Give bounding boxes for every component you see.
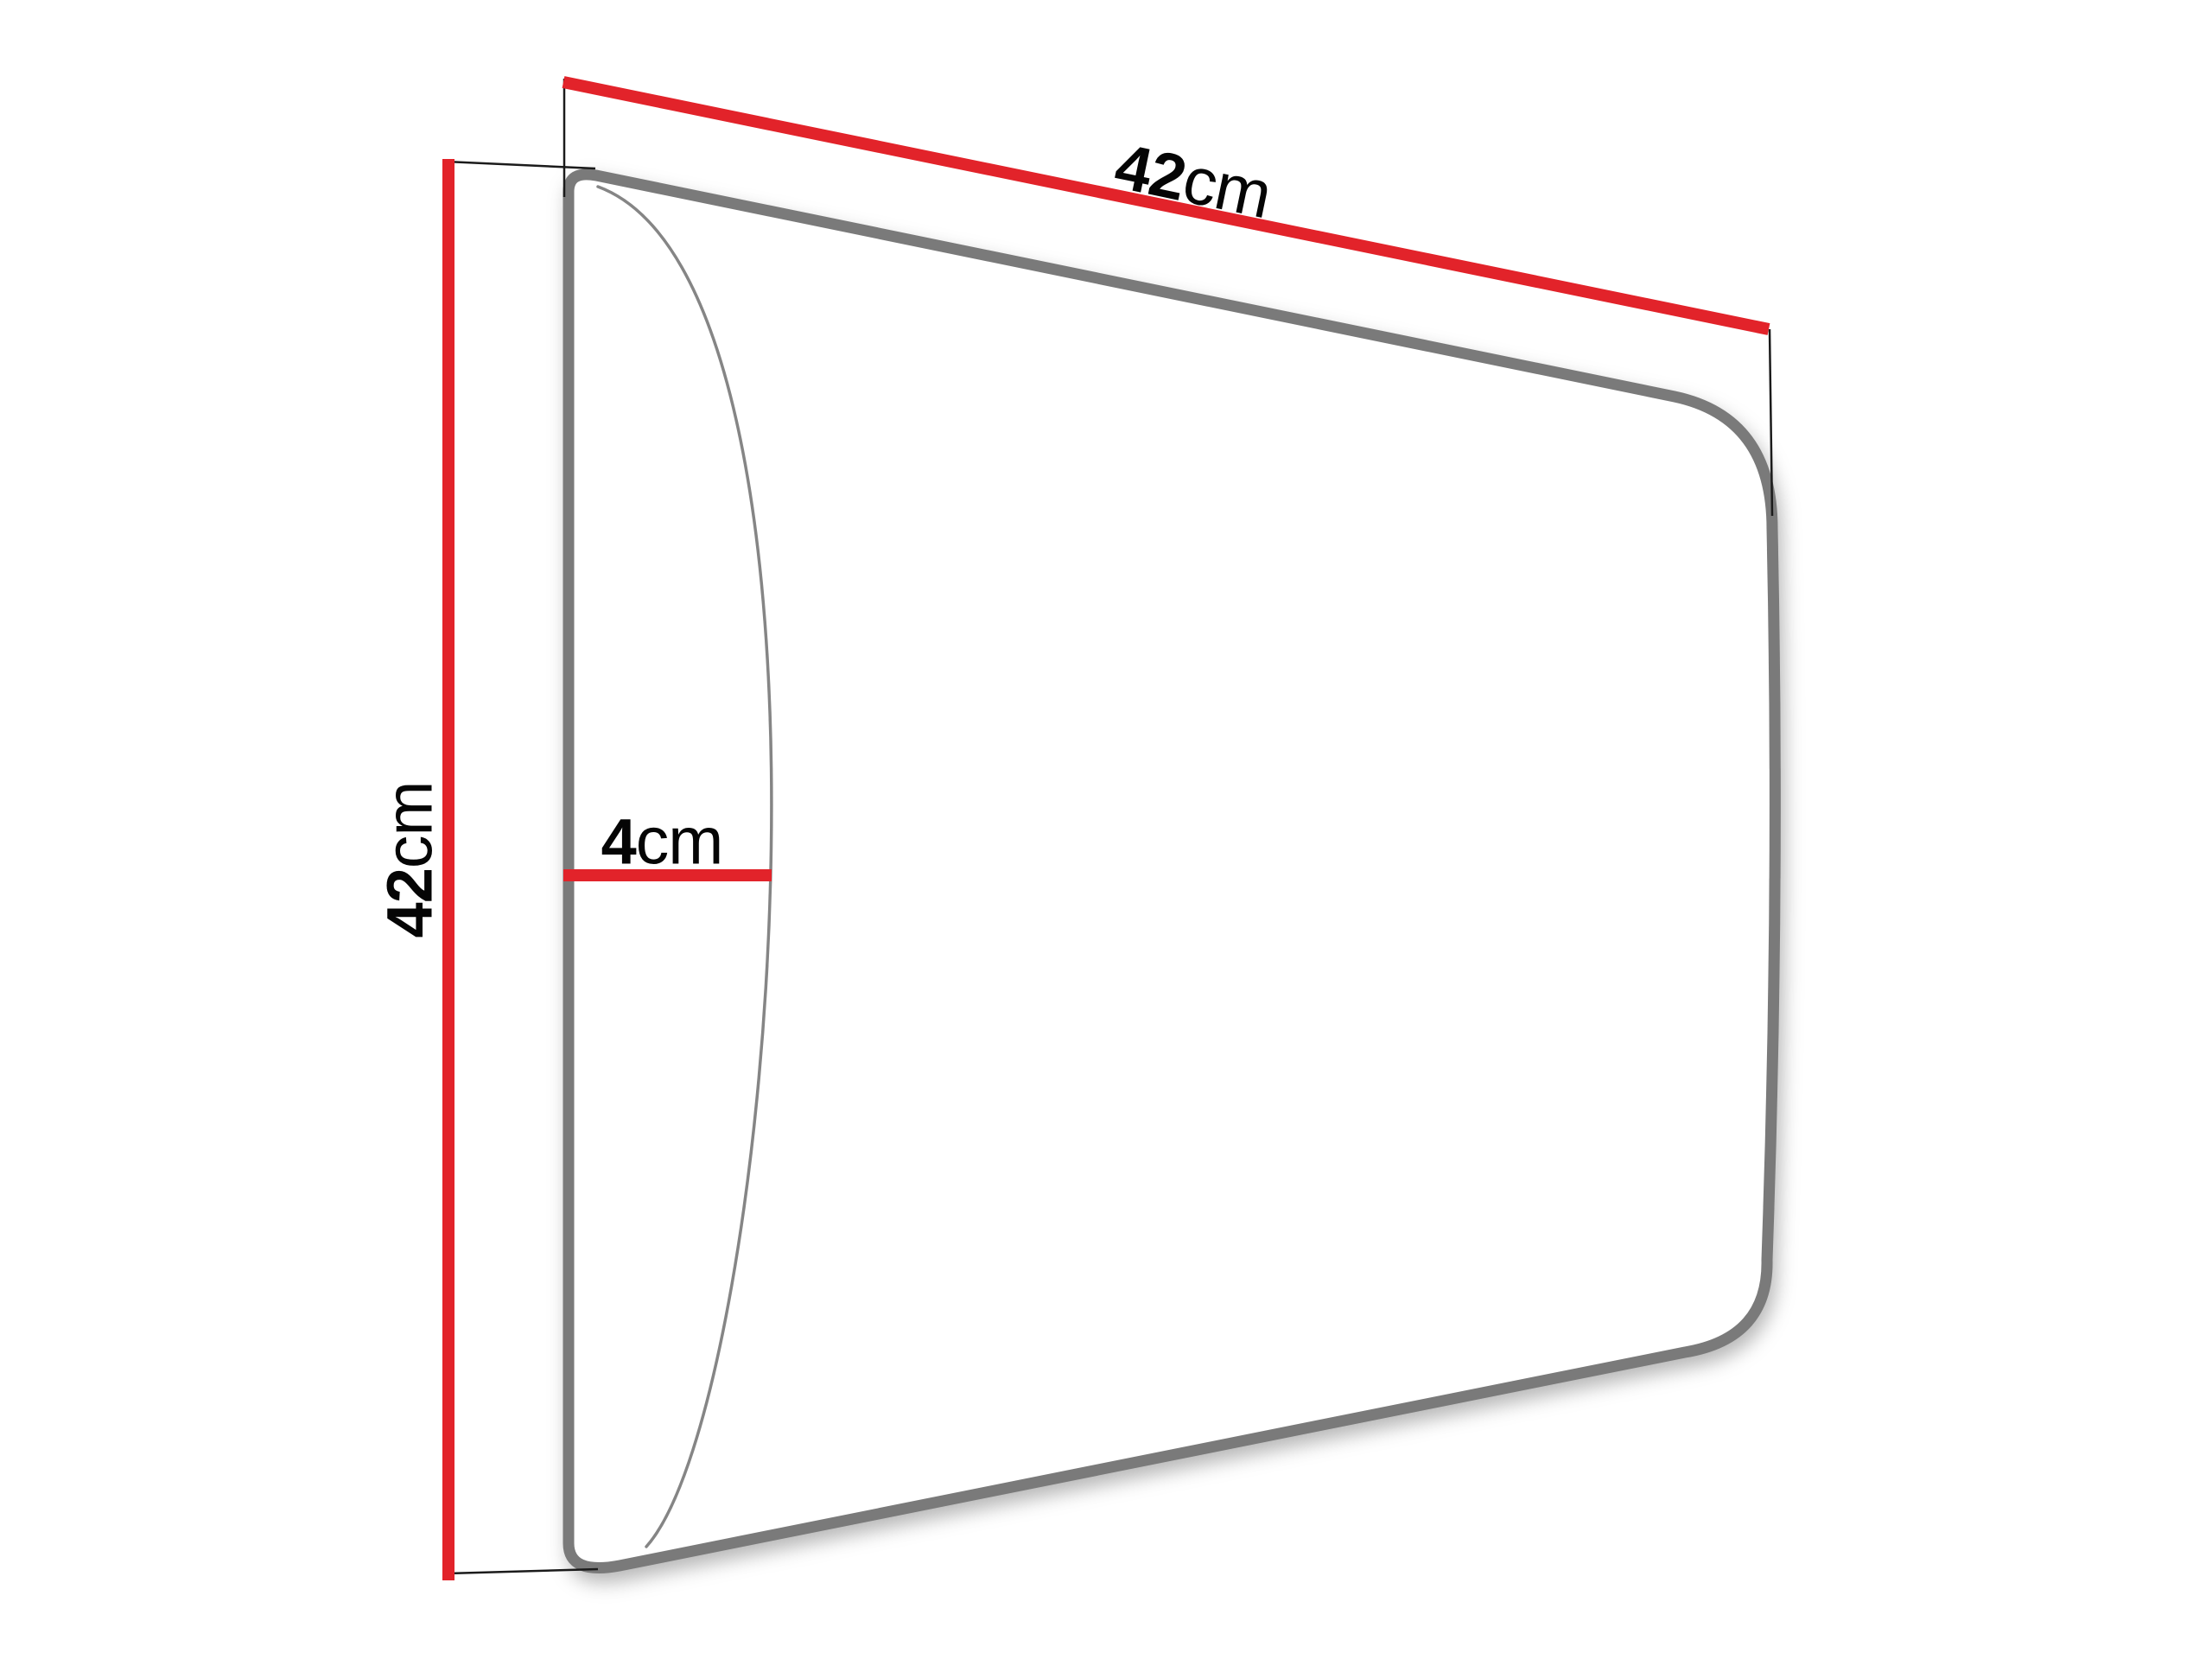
height-dimension-label: 42cm bbox=[377, 782, 443, 938]
panel-drawing bbox=[0, 0, 2212, 1659]
depth-dimension-label: 4cm bbox=[601, 809, 723, 875]
depth-value: 4 bbox=[601, 806, 636, 878]
height-extension-line-bottom bbox=[448, 1569, 598, 1573]
diagram-canvas: 42cm 42cm 4cm bbox=[0, 0, 2212, 1659]
depth-unit: cm bbox=[636, 804, 723, 879]
height-unit: cm bbox=[372, 782, 447, 869]
height-value: 42 bbox=[374, 868, 446, 938]
height-extension-line-top bbox=[446, 162, 595, 168]
